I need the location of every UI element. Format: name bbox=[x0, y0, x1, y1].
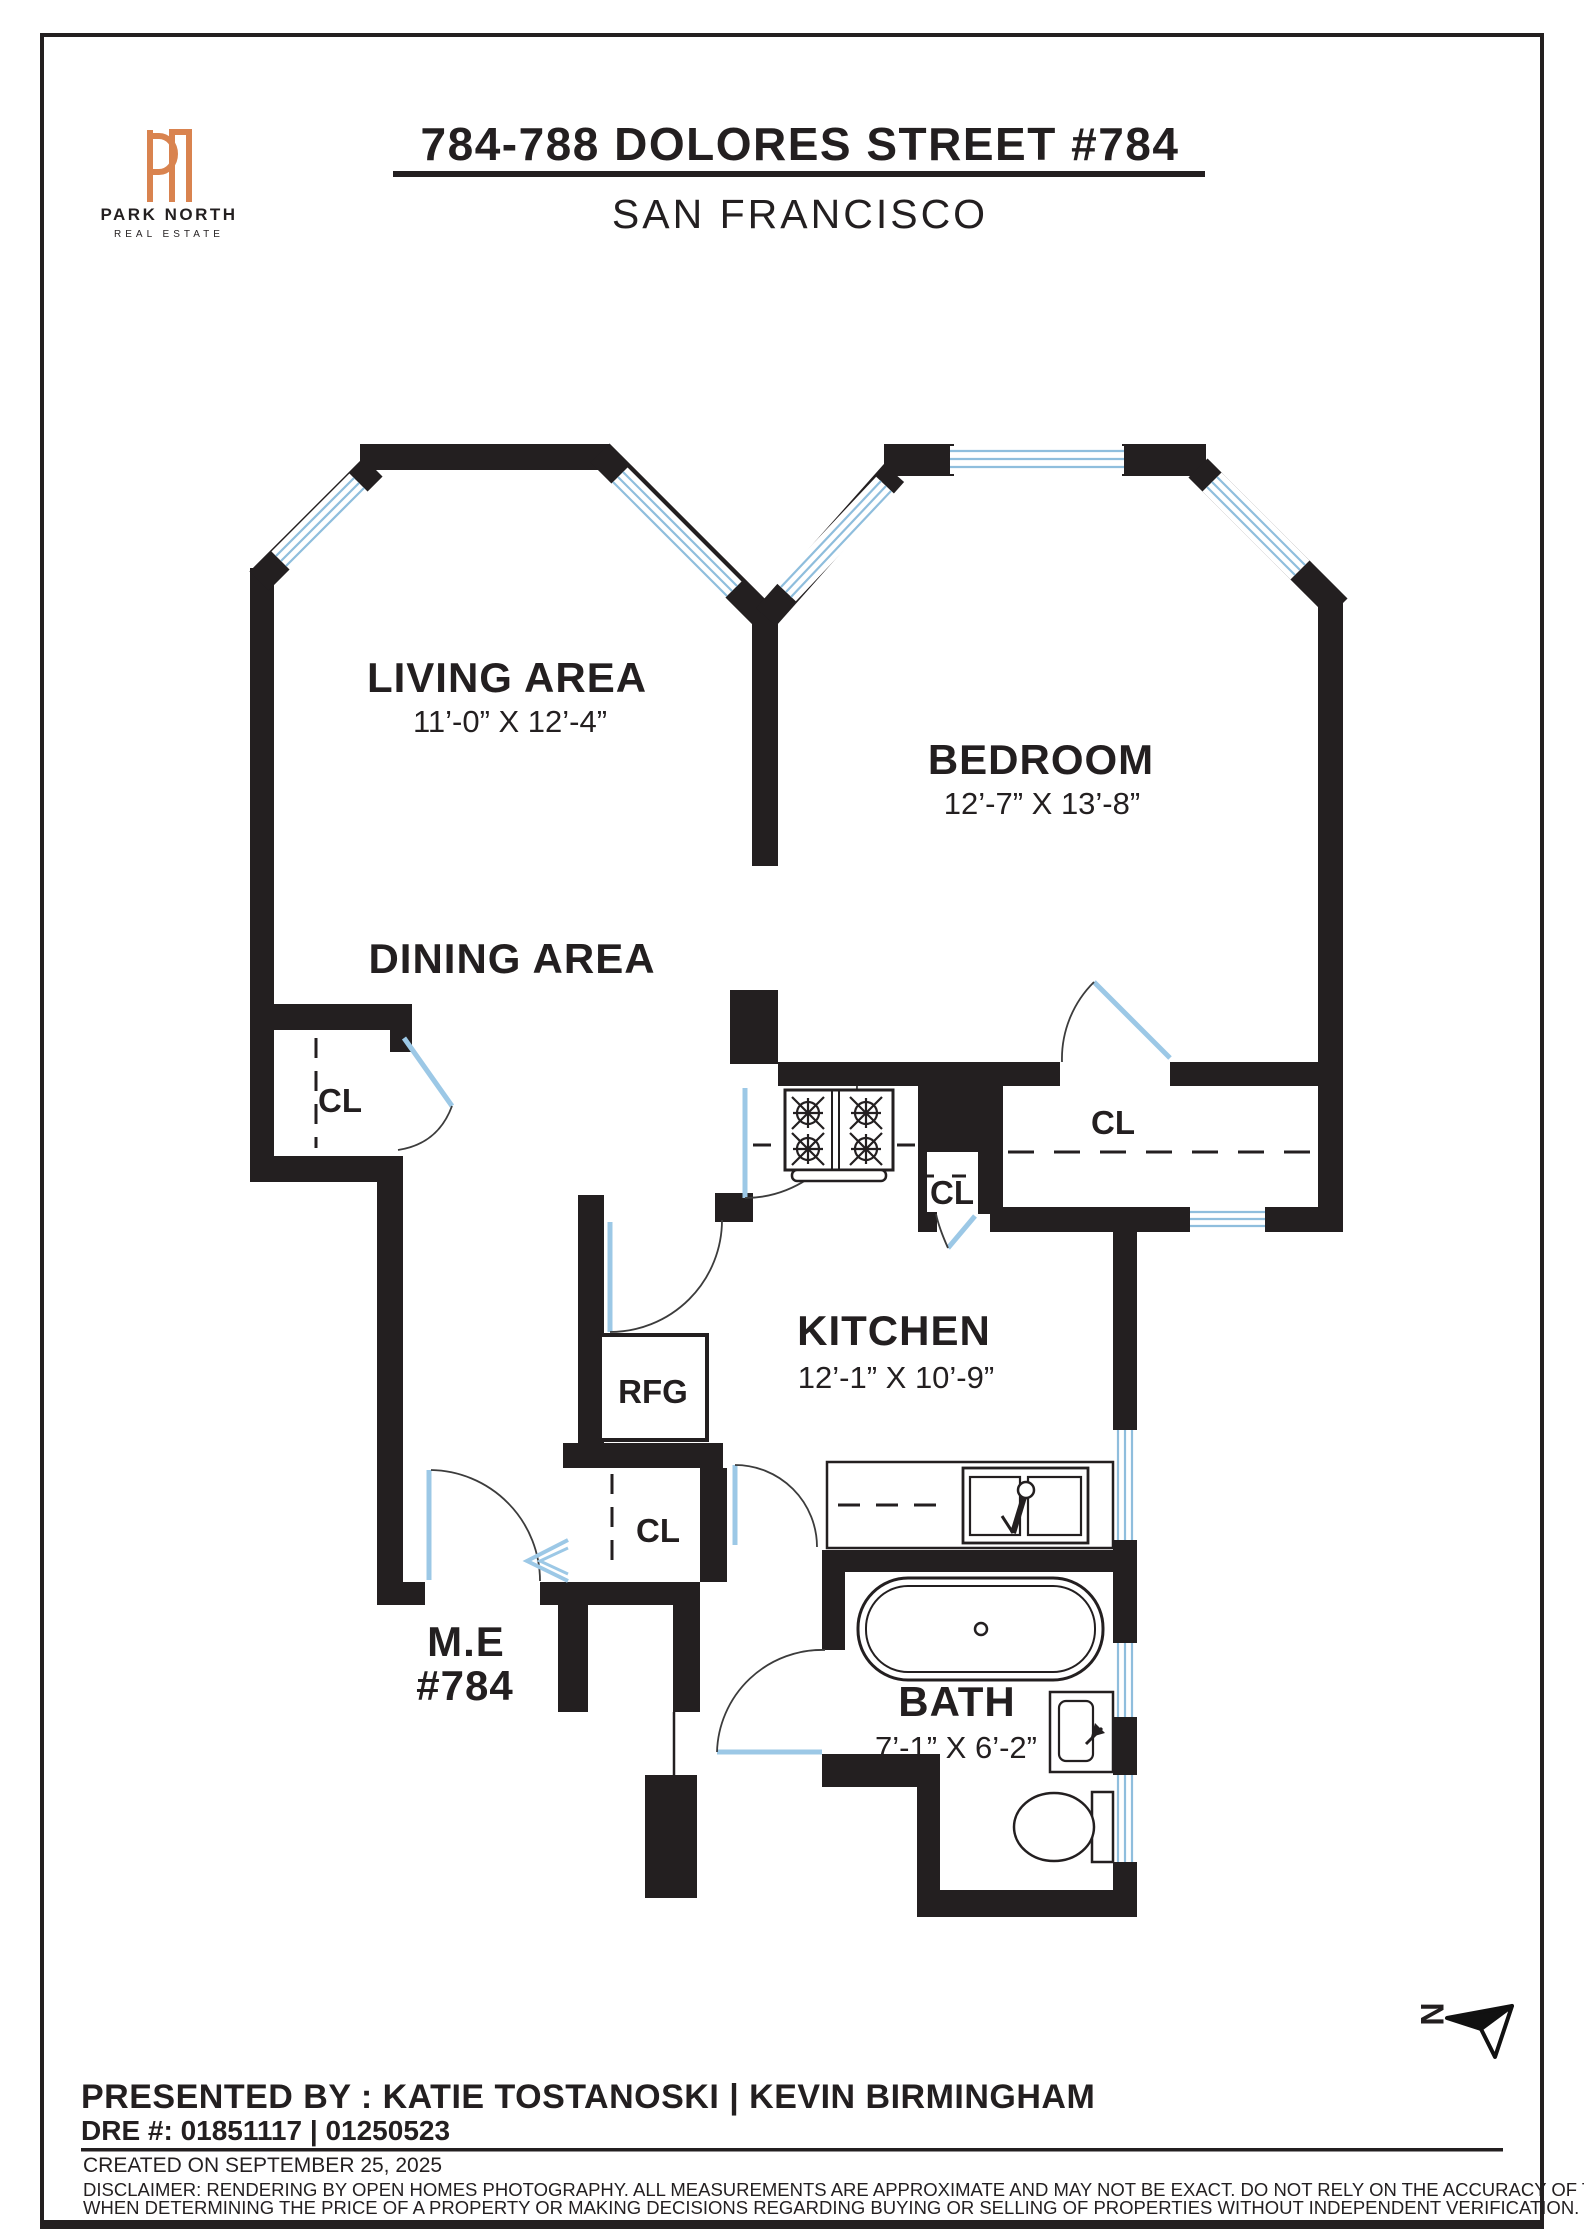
window-icon bbox=[1207, 477, 1305, 575]
room-dims-living: 11’-0” X 12’-4” bbox=[413, 704, 607, 739]
door-icon bbox=[1062, 982, 1170, 1062]
disclaimer-line2: WHEN DETERMINING THE PRICE OF A PROPERTY… bbox=[83, 2197, 1579, 2218]
floorplan-page: PARK NORTH REAL ESTATE 784-788 DOLORES S… bbox=[0, 0, 1584, 2240]
window-icon bbox=[1190, 1207, 1265, 1232]
stove-icon bbox=[785, 1090, 893, 1181]
logo-monogram-icon bbox=[150, 130, 189, 202]
room-label-bedroom: BEDROOM bbox=[928, 736, 1154, 783]
door-icon bbox=[936, 1214, 975, 1248]
room-dims-bedroom: 12’-7” X 13’-8” bbox=[944, 786, 1140, 821]
bathtub-icon bbox=[858, 1578, 1103, 1680]
window-icon bbox=[1113, 1430, 1137, 1540]
door-icon bbox=[429, 1470, 540, 1581]
room-dims-bath: 7’-1” X 6’-2” bbox=[875, 1730, 1037, 1765]
room-label-entry: M.E bbox=[427, 1618, 505, 1665]
title-underline bbox=[393, 171, 1205, 177]
room-dims-kitchen: 12’-1” X 10’-9” bbox=[798, 1360, 994, 1395]
closet-label-entry: CL bbox=[636, 1512, 680, 1549]
dre-number: DRE #: 01851117 | 01250523 bbox=[81, 2115, 450, 2146]
closet-label-bedroom: CL bbox=[1091, 1104, 1135, 1141]
footer: PRESENTED BY : KATIE TOSTANOSKI | KEVIN … bbox=[81, 2078, 1584, 2218]
window-icon bbox=[950, 446, 1124, 474]
door-icon bbox=[398, 1038, 452, 1150]
kitchen-sink-icon bbox=[963, 1468, 1088, 1543]
refrigerator-icon: RFG bbox=[600, 1335, 707, 1440]
toilet-icon bbox=[1014, 1792, 1113, 1862]
created-on: CREATED ON SEPTEMBER 25, 2025 bbox=[83, 2154, 442, 2177]
closet-label-living: CL bbox=[318, 1082, 362, 1119]
bifold-door-icon bbox=[527, 1540, 568, 1581]
header: PARK NORTH REAL ESTATE 784-788 DOLORES S… bbox=[100, 118, 1205, 240]
door-icon bbox=[735, 1465, 817, 1547]
refrigerator-label: RFG bbox=[618, 1373, 688, 1410]
north-arrow: N bbox=[1414, 2002, 1512, 2057]
logo-tagline: REAL ESTATE bbox=[114, 229, 224, 240]
kitchen-counter bbox=[827, 1462, 1113, 1548]
park-north-logo: PARK NORTH REAL ESTATE bbox=[100, 130, 237, 240]
closet-label-kitchen: CL bbox=[930, 1174, 974, 1211]
room-label-kitchen: KITCHEN bbox=[797, 1307, 991, 1354]
window-icon bbox=[781, 481, 891, 597]
logo-name: PARK NORTH bbox=[100, 205, 237, 224]
window-icon bbox=[276, 478, 364, 566]
room-label-bath: BATH bbox=[898, 1678, 1016, 1725]
door-icon bbox=[610, 1220, 722, 1332]
page-title: 784-788 DOLORES STREET #784 bbox=[421, 118, 1180, 170]
presented-by: PRESENTED BY : KATIE TOSTANOSKI | KEVIN … bbox=[81, 2078, 1095, 2116]
window-icon bbox=[1113, 1643, 1137, 1717]
page-subtitle: SAN FRANCISCO bbox=[612, 191, 988, 237]
window-icon bbox=[1113, 1775, 1137, 1862]
window-icon bbox=[613, 472, 737, 596]
compass-arrow-icon bbox=[1447, 2006, 1512, 2057]
door-icon bbox=[717, 1650, 825, 1752]
room-label-living: LIVING AREA bbox=[367, 654, 647, 701]
room-number-entry: #784 bbox=[416, 1662, 513, 1709]
room-label-dining: DINING AREA bbox=[368, 935, 655, 982]
north-label: N bbox=[1414, 2002, 1450, 2025]
floorplan-canvas: PARK NORTH REAL ESTATE 784-788 DOLORES S… bbox=[0, 0, 1584, 2240]
bath-sink-icon bbox=[1050, 1692, 1113, 1772]
footer-rule bbox=[81, 2148, 1503, 2152]
